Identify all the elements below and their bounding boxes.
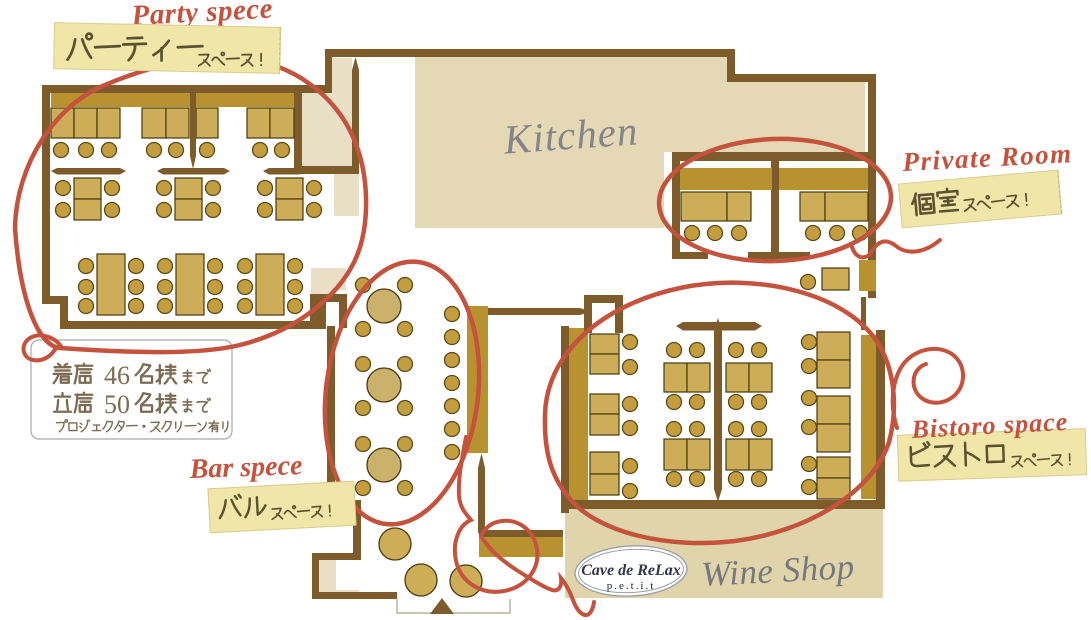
svg-text:Kitchen: Kitchen [501,107,639,162]
svg-text:46: 46 [104,361,130,390]
svg-text:50: 50 [104,390,130,419]
svg-text:p.e.t.i.t: p.e.t.i.t [607,580,656,592]
svg-text:Wine Shop: Wine Shop [700,547,855,594]
svg-text:Bar spece: Bar spece [188,450,303,485]
svg-text:Cave de ReLax: Cave de ReLax [581,562,681,579]
